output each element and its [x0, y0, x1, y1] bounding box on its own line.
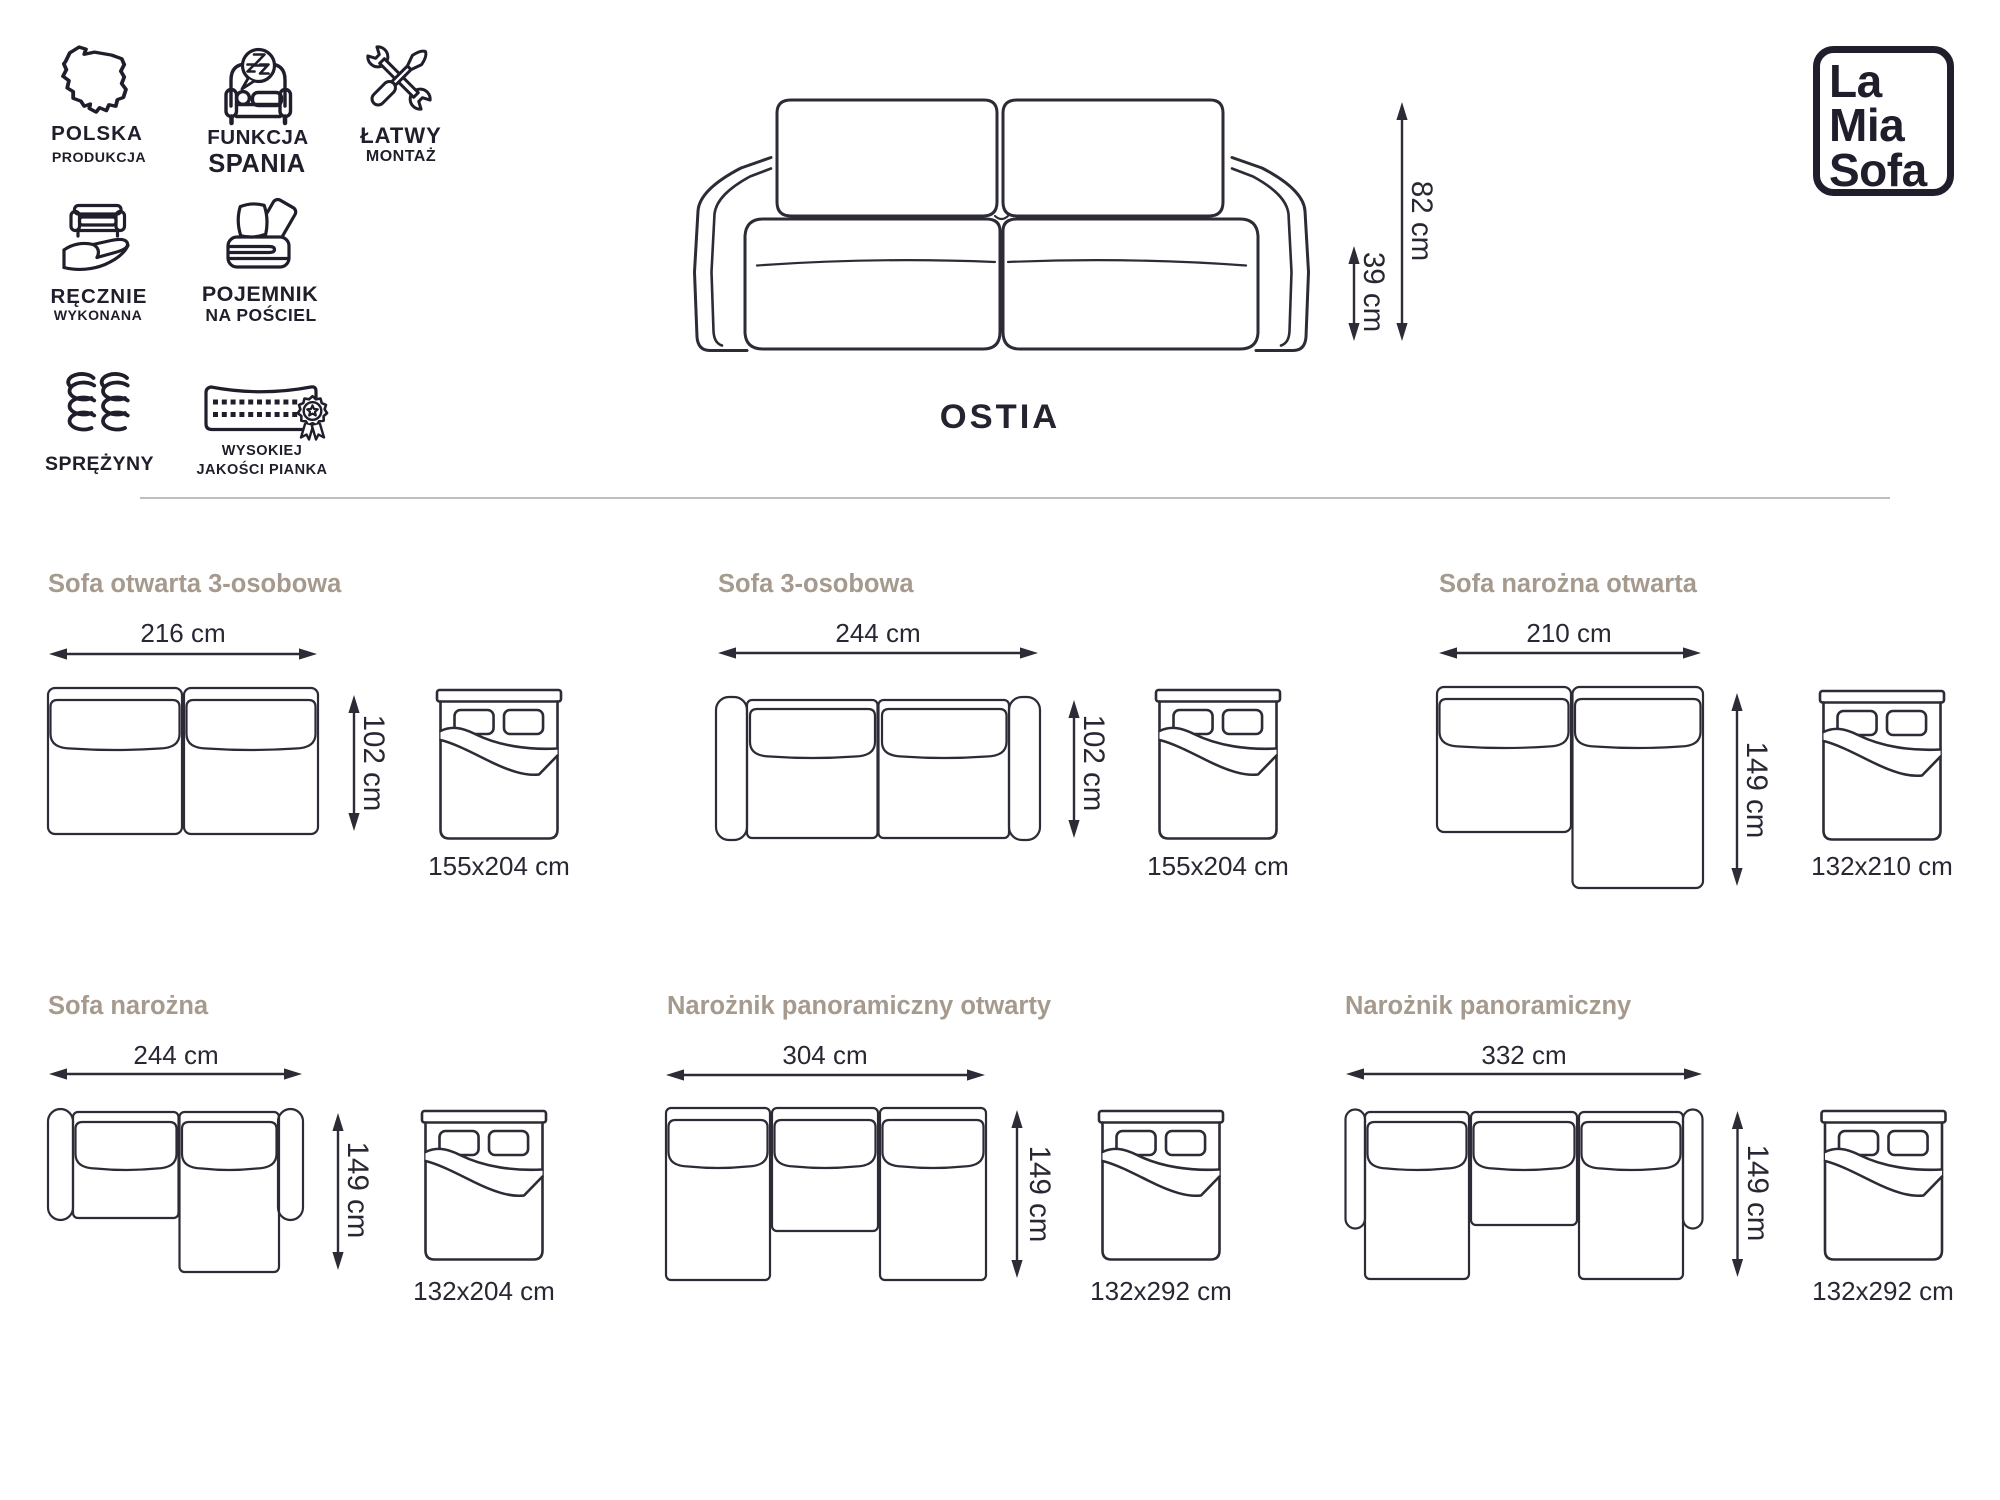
- svg-text:304 cm: 304 cm: [782, 1040, 867, 1070]
- svg-text:210 cm: 210 cm: [1526, 618, 1611, 648]
- svg-text:Narożnik panoramiczny otwarty: Narożnik panoramiczny otwarty: [667, 992, 1052, 1020]
- svg-text:132x210 cm: 132x210 cm: [1811, 851, 1953, 881]
- svg-text:132x292 cm: 132x292 cm: [1812, 1276, 1954, 1306]
- svg-text:POLSKA: POLSKA: [51, 122, 143, 145]
- svg-text:132x204 cm: 132x204 cm: [413, 1276, 555, 1306]
- svg-text:149 cm: 149 cm: [1741, 1145, 1774, 1242]
- svg-text:244 cm: 244 cm: [133, 1040, 218, 1070]
- svg-text:WYKONANA: WYKONANA: [54, 307, 143, 323]
- svg-text:OSTIA: OSTIA: [940, 398, 1060, 436]
- svg-text:332 cm: 332 cm: [1481, 1040, 1566, 1070]
- svg-text:Sofa otwarta 3-osobowa: Sofa otwarta 3-osobowa: [48, 570, 342, 598]
- svg-text:PRODUKCJA: PRODUKCJA: [52, 150, 146, 166]
- svg-text:WYSOKIEJ: WYSOKIEJ: [222, 443, 303, 459]
- svg-text:ŁATWY: ŁATWY: [360, 123, 442, 148]
- svg-text:132x292 cm: 132x292 cm: [1090, 1276, 1232, 1306]
- svg-text:155x204 cm: 155x204 cm: [1147, 851, 1289, 881]
- svg-text:Sofa 3-osobowa: Sofa 3-osobowa: [718, 570, 914, 598]
- svg-text:39 cm: 39 cm: [1357, 252, 1390, 332]
- svg-text:RĘCZNIE: RĘCZNIE: [51, 285, 148, 308]
- svg-text:149 cm: 149 cm: [1740, 742, 1773, 839]
- svg-text:Sofa: Sofa: [1829, 144, 1928, 196]
- svg-text:SPRĘŻYNY: SPRĘŻYNY: [45, 452, 154, 475]
- svg-text:POJEMNIK: POJEMNIK: [202, 282, 318, 306]
- svg-text:SPANIA: SPANIA: [208, 150, 305, 178]
- svg-text:Narożnik panoramiczny: Narożnik panoramiczny: [1345, 992, 1632, 1020]
- svg-text:NA POŚCIEL: NA POŚCIEL: [205, 304, 316, 325]
- svg-text:216 cm: 216 cm: [140, 618, 225, 648]
- svg-text:MONTAŻ: MONTAŻ: [366, 147, 436, 165]
- svg-text:JAKOŚCI PIANKA: JAKOŚCI PIANKA: [196, 460, 327, 478]
- svg-text:102 cm: 102 cm: [357, 715, 390, 812]
- svg-text:82 cm: 82 cm: [1405, 181, 1438, 261]
- svg-text:Sofa narożna otwarta: Sofa narożna otwarta: [1439, 570, 1698, 598]
- svg-text:155x204 cm: 155x204 cm: [428, 851, 570, 881]
- svg-text:149 cm: 149 cm: [341, 1142, 374, 1239]
- svg-text:FUNKCJA: FUNKCJA: [207, 126, 308, 149]
- svg-text:149 cm: 149 cm: [1023, 1146, 1056, 1243]
- svg-text:244 cm: 244 cm: [835, 618, 920, 648]
- svg-text:102 cm: 102 cm: [1077, 715, 1110, 812]
- svg-text:Sofa narożna: Sofa narożna: [48, 992, 209, 1020]
